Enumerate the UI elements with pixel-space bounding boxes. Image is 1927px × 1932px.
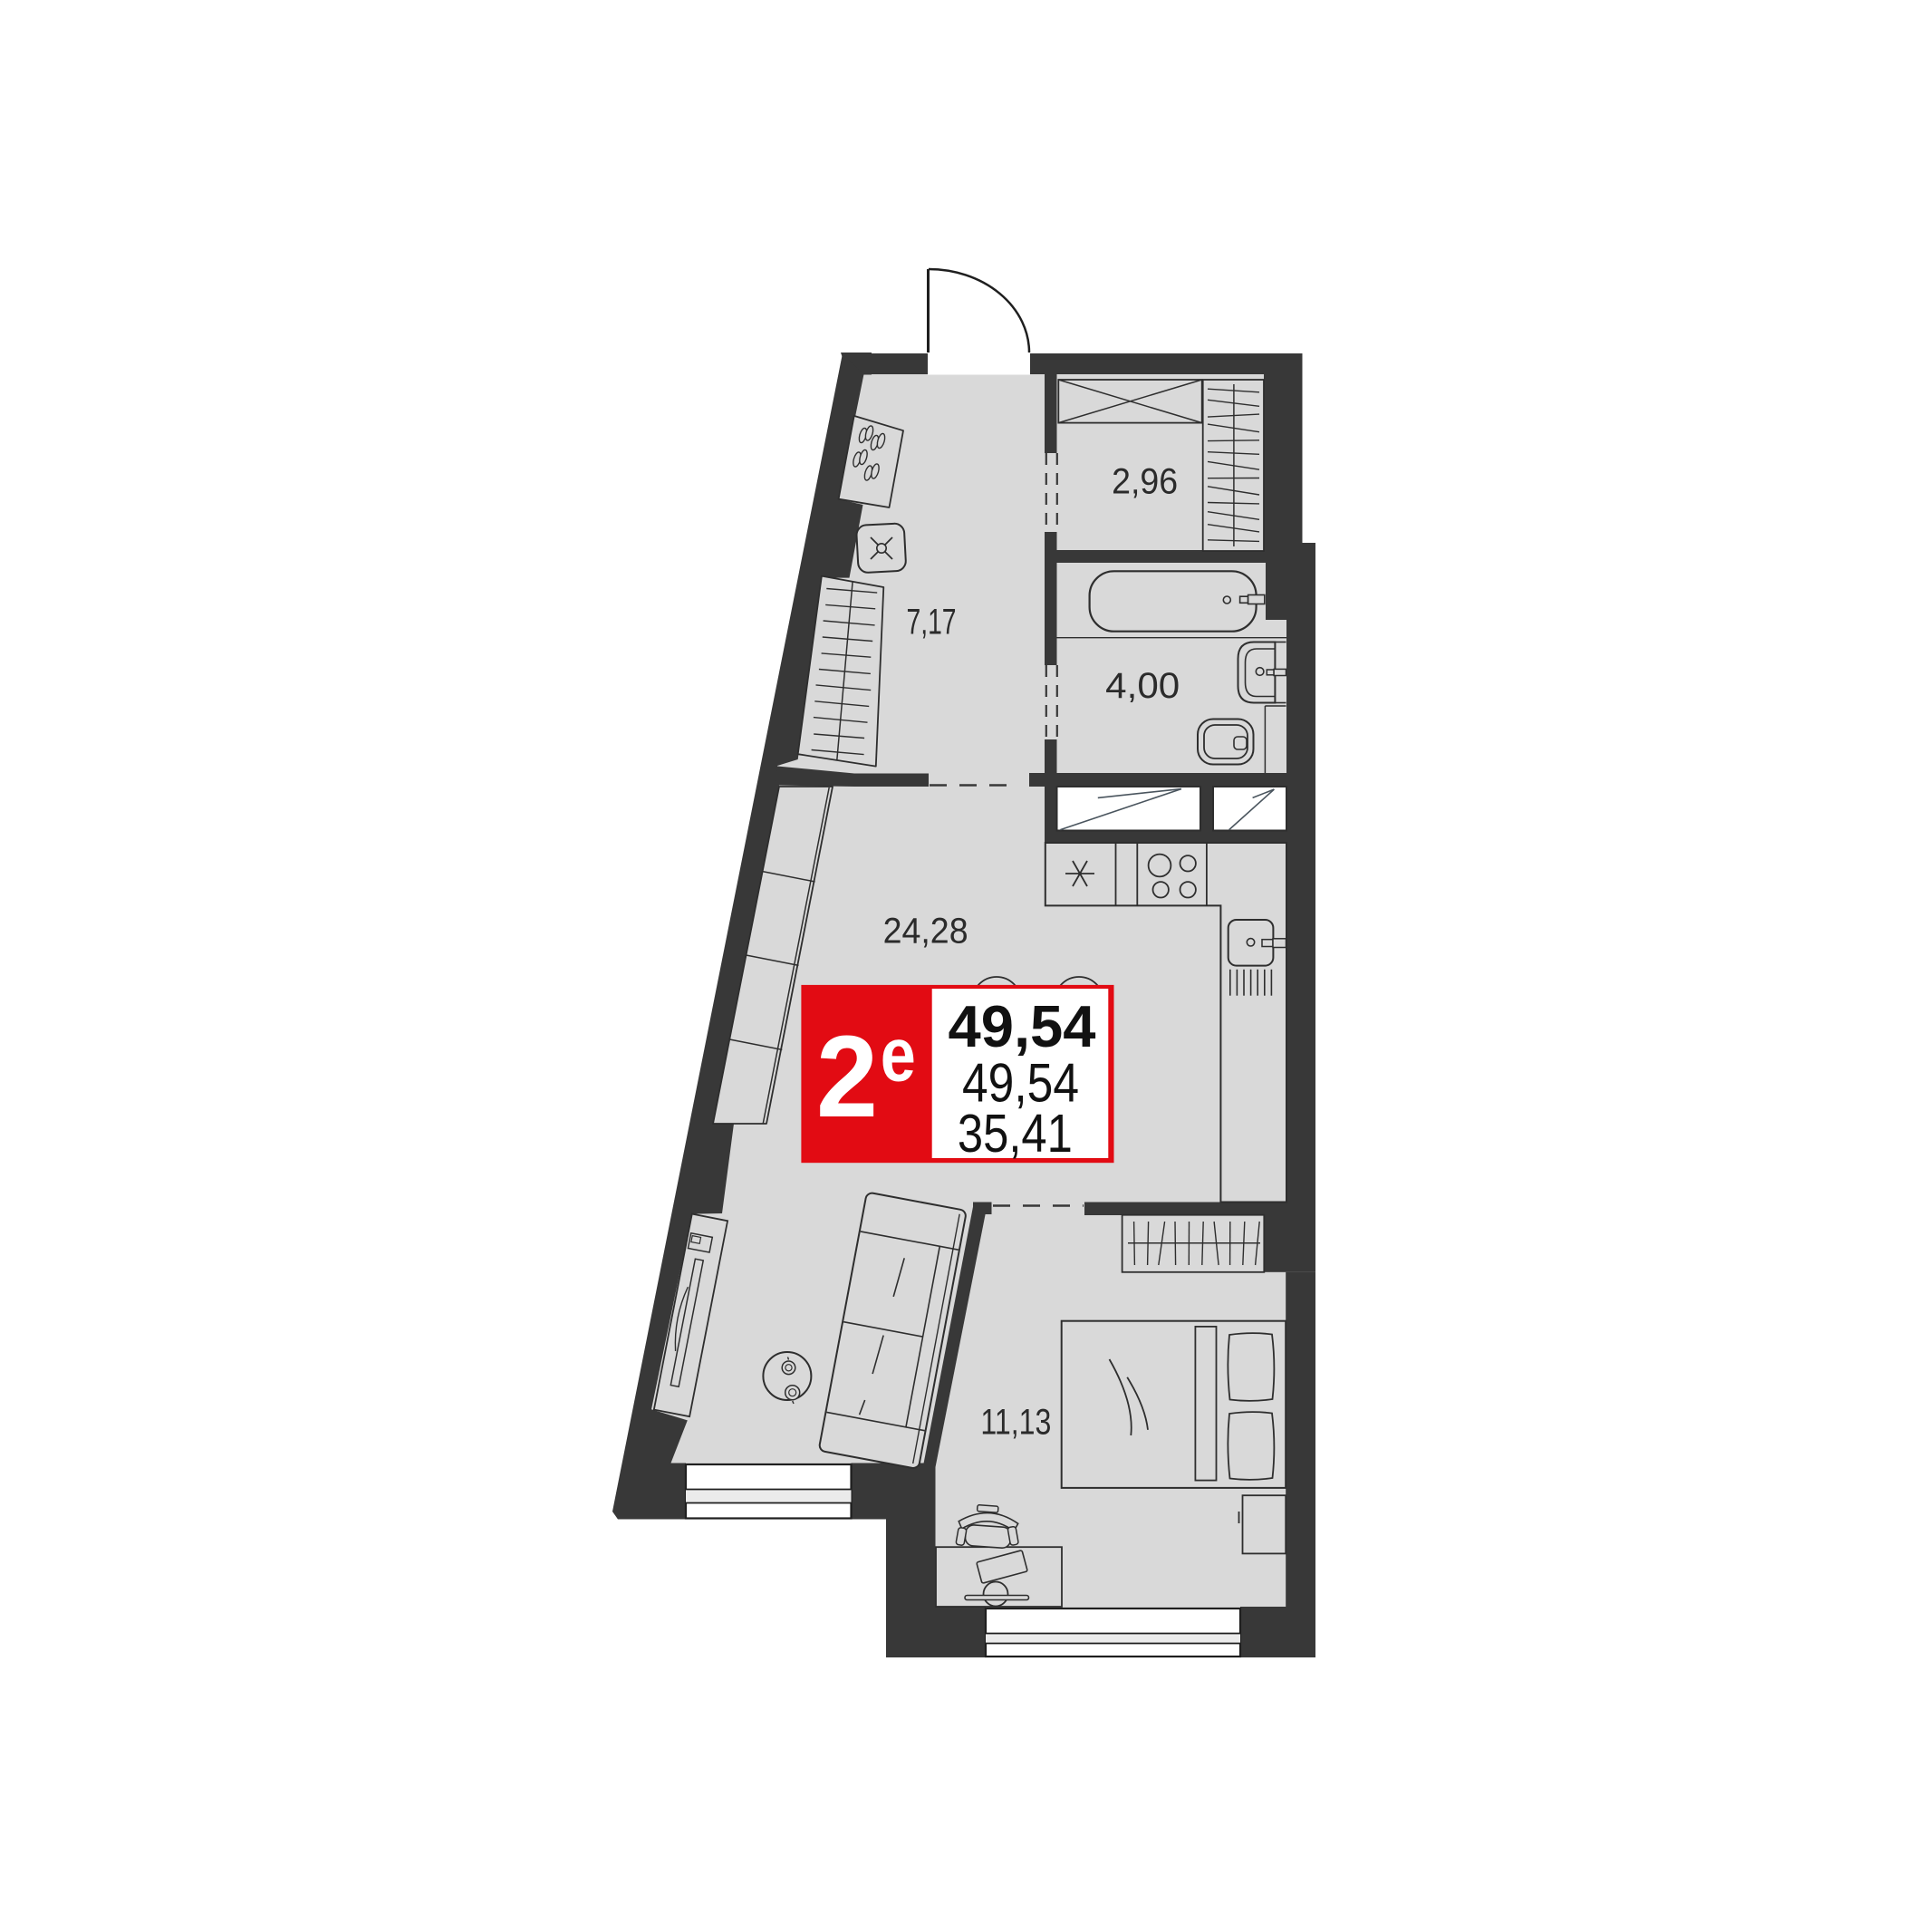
svg-text:2,96: 2,96 <box>1112 462 1178 502</box>
svg-text:35,41: 35,41 <box>958 1104 1073 1164</box>
svg-text:е: е <box>881 1012 916 1097</box>
svg-text:11,13: 11,13 <box>980 1403 1051 1443</box>
svg-text:4,00: 4,00 <box>1105 666 1180 706</box>
svg-text:49,54: 49,54 <box>949 993 1096 1059</box>
svg-text:24,28: 24,28 <box>883 912 968 952</box>
svg-text:2: 2 <box>816 1012 878 1142</box>
svg-text:7,17: 7,17 <box>907 603 957 642</box>
